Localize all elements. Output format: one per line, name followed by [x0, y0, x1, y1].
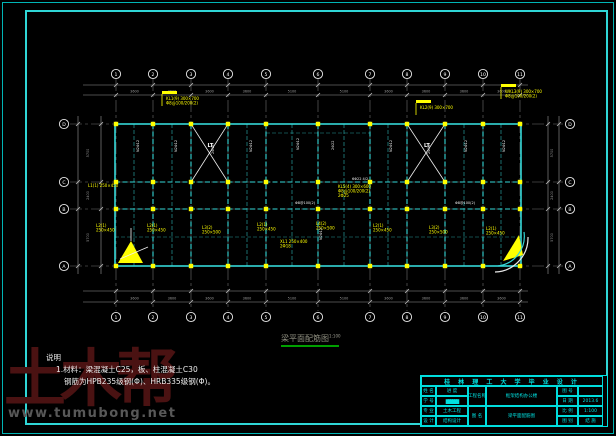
rebar-note: Φ8@100(2)	[295, 201, 316, 205]
rebar-note: N2Φ12	[296, 138, 300, 150]
axis-bubble-label: 5	[265, 315, 268, 321]
column-marker	[264, 122, 268, 126]
column-marker	[151, 207, 155, 211]
tb-label: 图 名	[468, 406, 486, 426]
axis-bubble-label: 4	[227, 72, 230, 78]
axis-bubble-label: 10	[480, 72, 486, 78]
dim-value: 3600	[205, 90, 214, 94]
dim-value: 3600	[168, 297, 177, 301]
column-marker	[518, 122, 522, 126]
tb-value: 进 度	[436, 386, 468, 396]
column-marker	[316, 122, 320, 126]
column-marker	[405, 122, 409, 126]
axis-bubble-label: 5	[265, 72, 268, 78]
axis-bubble-label: 1	[115, 315, 118, 321]
column-marker	[443, 180, 447, 184]
tb-label: 图 别	[557, 416, 578, 426]
tb-label: 日 期	[557, 396, 578, 406]
column-marker	[368, 207, 372, 211]
column-marker	[481, 207, 485, 211]
label-flag	[162, 91, 177, 94]
column-marker	[189, 264, 193, 268]
caption-title: 梁平面配筋图	[281, 334, 329, 343]
column-marker	[481, 180, 485, 184]
beam-label: 2Φ25	[338, 193, 349, 198]
dim-value: 3600	[384, 90, 393, 94]
axis-bubble-label: 1	[115, 72, 118, 78]
axis-bubble-label: 6	[317, 72, 320, 78]
dim-value: 5700	[550, 149, 554, 158]
column-marker	[518, 207, 522, 211]
column-marker	[316, 207, 320, 211]
tb-value: 2013.6	[578, 396, 603, 406]
tb-label: 学 号	[421, 396, 436, 406]
dim-value: 5700	[86, 233, 90, 242]
dim-value: 5100	[288, 297, 297, 301]
column-marker	[189, 207, 193, 211]
rebar-note: N2Φ12	[249, 140, 253, 152]
dim-value: 5100	[340, 297, 349, 301]
axis-bubble-label: 2	[152, 315, 155, 321]
axis-bubble-label: B	[568, 207, 571, 213]
beam-label: 250×450	[257, 227, 276, 232]
dim-value: 3600	[205, 297, 214, 301]
dim-value: 3600	[422, 90, 431, 94]
tb-label: 工程名称	[468, 386, 486, 406]
caption-underline	[281, 345, 339, 347]
dim-value: 3600	[243, 90, 252, 94]
column-marker	[151, 180, 155, 184]
dim-value: 3600	[497, 297, 506, 301]
rebar-note: N2Φ12	[502, 140, 506, 152]
title-block: 桂 林 理 工 大 学 毕 业 设 计 姓 名 进 度 工程名称 框架结构办公楼…	[420, 375, 608, 427]
column-marker	[226, 264, 230, 268]
rebar-note: N2Φ12	[464, 140, 468, 152]
column-marker	[405, 264, 409, 268]
tb-label: 图 号	[557, 386, 578, 396]
beam-label: 250×450	[147, 228, 166, 233]
tb-value: 土木工程	[436, 406, 468, 416]
axis-bubble-label: 7	[369, 72, 372, 78]
axis-bubble-label: 3	[190, 315, 193, 321]
column-marker	[151, 264, 155, 268]
beam-label: 250×500	[202, 230, 221, 235]
axis-bubble-label: 2	[152, 72, 155, 78]
column-marker	[443, 122, 447, 126]
notes-heading: 说明	[46, 352, 215, 364]
dim-value: 3600	[460, 90, 469, 94]
beam-label: KL2(9) 300×700	[420, 105, 453, 110]
dim-value: 5700	[86, 149, 90, 158]
section-mark	[118, 241, 143, 263]
tb-label: 比 例	[557, 406, 578, 416]
column-marker	[226, 207, 230, 211]
column-marker	[368, 122, 372, 126]
beam-label: Φ8@100/200(2)	[505, 94, 537, 99]
cad-sheet: 土木帮 11223344556677889910101111DDCCBBAA36…	[0, 0, 616, 436]
axis-bubble-label: C	[568, 180, 571, 186]
rebar-note: N2Φ12	[389, 140, 393, 152]
column-marker	[151, 122, 155, 126]
rebar-note: 2Φ22	[331, 141, 335, 150]
axis-bubble-label: D	[62, 122, 66, 128]
axis-bubble-label: D	[568, 122, 572, 128]
axis-bubble-label: 8	[406, 315, 409, 321]
column-marker	[405, 180, 409, 184]
axis-bubble-label: 11	[517, 72, 523, 78]
tb-label: 设 计	[421, 416, 436, 426]
axis-bubble-label: C	[62, 180, 65, 186]
column-marker	[226, 180, 230, 184]
dim-value: 3600	[384, 297, 393, 301]
tb-value: 结构设计	[436, 416, 468, 426]
tb-value: 1:100	[578, 406, 603, 416]
axis-bubble-label: 7	[369, 315, 372, 321]
beam-label: 2Φ18	[280, 244, 291, 249]
column-marker	[443, 207, 447, 211]
beam-label: 250×450	[373, 228, 392, 233]
watermark-url: www.tumubong.net	[8, 406, 176, 421]
column-marker	[114, 207, 118, 211]
dim-value: 5100	[288, 90, 297, 94]
notes-line: 钢筋为HPB235级钢(Φ)、HRB335级钢(Φ)。	[46, 376, 215, 388]
axis-bubble-label: 9	[444, 72, 447, 78]
column-marker	[189, 180, 193, 184]
rebar-note: N2Φ12	[174, 140, 178, 152]
column-marker	[316, 180, 320, 184]
beam-label: Φ8@100/200(2)	[166, 101, 198, 106]
column-marker	[443, 264, 447, 268]
dim-value: 3600	[130, 90, 139, 94]
rebar-note: 6Φ22 4/2	[352, 177, 368, 181]
dim-value: 3600	[422, 297, 431, 301]
dim-value: 3600	[460, 297, 469, 301]
column-marker	[114, 264, 118, 268]
rebar-note: N2Φ12	[136, 140, 140, 152]
tb-value	[578, 386, 603, 396]
column-marker	[226, 122, 230, 126]
label-flag	[501, 84, 516, 87]
column-marker	[114, 122, 118, 126]
caption-scale: 1:100	[329, 333, 341, 338]
tb-value: 框架结构办公楼	[486, 386, 557, 406]
column-marker	[481, 122, 485, 126]
tb-value: 结 施	[578, 416, 603, 426]
column-marker	[264, 180, 268, 184]
title-block-title: 桂 林 理 工 大 学 毕 业 设 计	[421, 376, 603, 386]
beam-label: 250×450	[96, 228, 115, 233]
column-marker	[264, 264, 268, 268]
tb-value: 梁平面配筋图	[486, 406, 557, 426]
tb-value-censored: ██████	[436, 396, 468, 406]
rebar-note: N2Φ12	[319, 228, 323, 240]
axis-bubble-label: 8	[406, 72, 409, 78]
rebar-note: 2Φ16	[427, 145, 431, 154]
column-marker	[316, 264, 320, 268]
drawing-caption: 梁平面配筋图1:100	[281, 333, 341, 347]
axis-bubble-label: B	[62, 207, 65, 213]
dim-value: 3600	[243, 297, 252, 301]
axis-bubble-label: 6	[317, 315, 320, 321]
tb-label: 专 业	[421, 406, 436, 416]
notes-block: 说明 1.材料：梁混凝土C25，板、柱混凝土C30 钢筋为HPB235级钢(Φ)…	[46, 352, 215, 388]
column-marker	[368, 264, 372, 268]
notes-line: 1.材料：梁混凝土C25，板、柱混凝土C30	[46, 364, 215, 376]
dim-value: 2400	[86, 191, 90, 200]
axis-bubble-label: 10	[480, 315, 486, 321]
axis-bubble-label: 11	[517, 315, 523, 321]
dim-value: 5700	[550, 233, 554, 242]
column-marker	[481, 264, 485, 268]
dim-value: 5100	[340, 90, 349, 94]
axis-bubble-label: 4	[227, 315, 230, 321]
rebar-note: Φ8@100(2)	[455, 201, 476, 205]
column-marker	[518, 264, 522, 268]
beam-label: L1(1) 250×450	[88, 183, 119, 188]
column-marker	[518, 180, 522, 184]
dim-value: 2400	[550, 191, 554, 200]
beam-label: 250×450	[486, 231, 505, 236]
axis-bubble-label: 3	[190, 72, 193, 78]
tb-label: 姓 名	[421, 386, 436, 396]
dim-value: 3600	[130, 297, 139, 301]
column-marker	[264, 207, 268, 211]
rebar-note: 2Φ16	[211, 145, 215, 154]
column-marker	[405, 207, 409, 211]
axis-bubble-label: 9	[444, 315, 447, 321]
beam-label: 250×500	[429, 230, 448, 235]
label-flag	[416, 100, 431, 103]
column-marker	[189, 122, 193, 126]
